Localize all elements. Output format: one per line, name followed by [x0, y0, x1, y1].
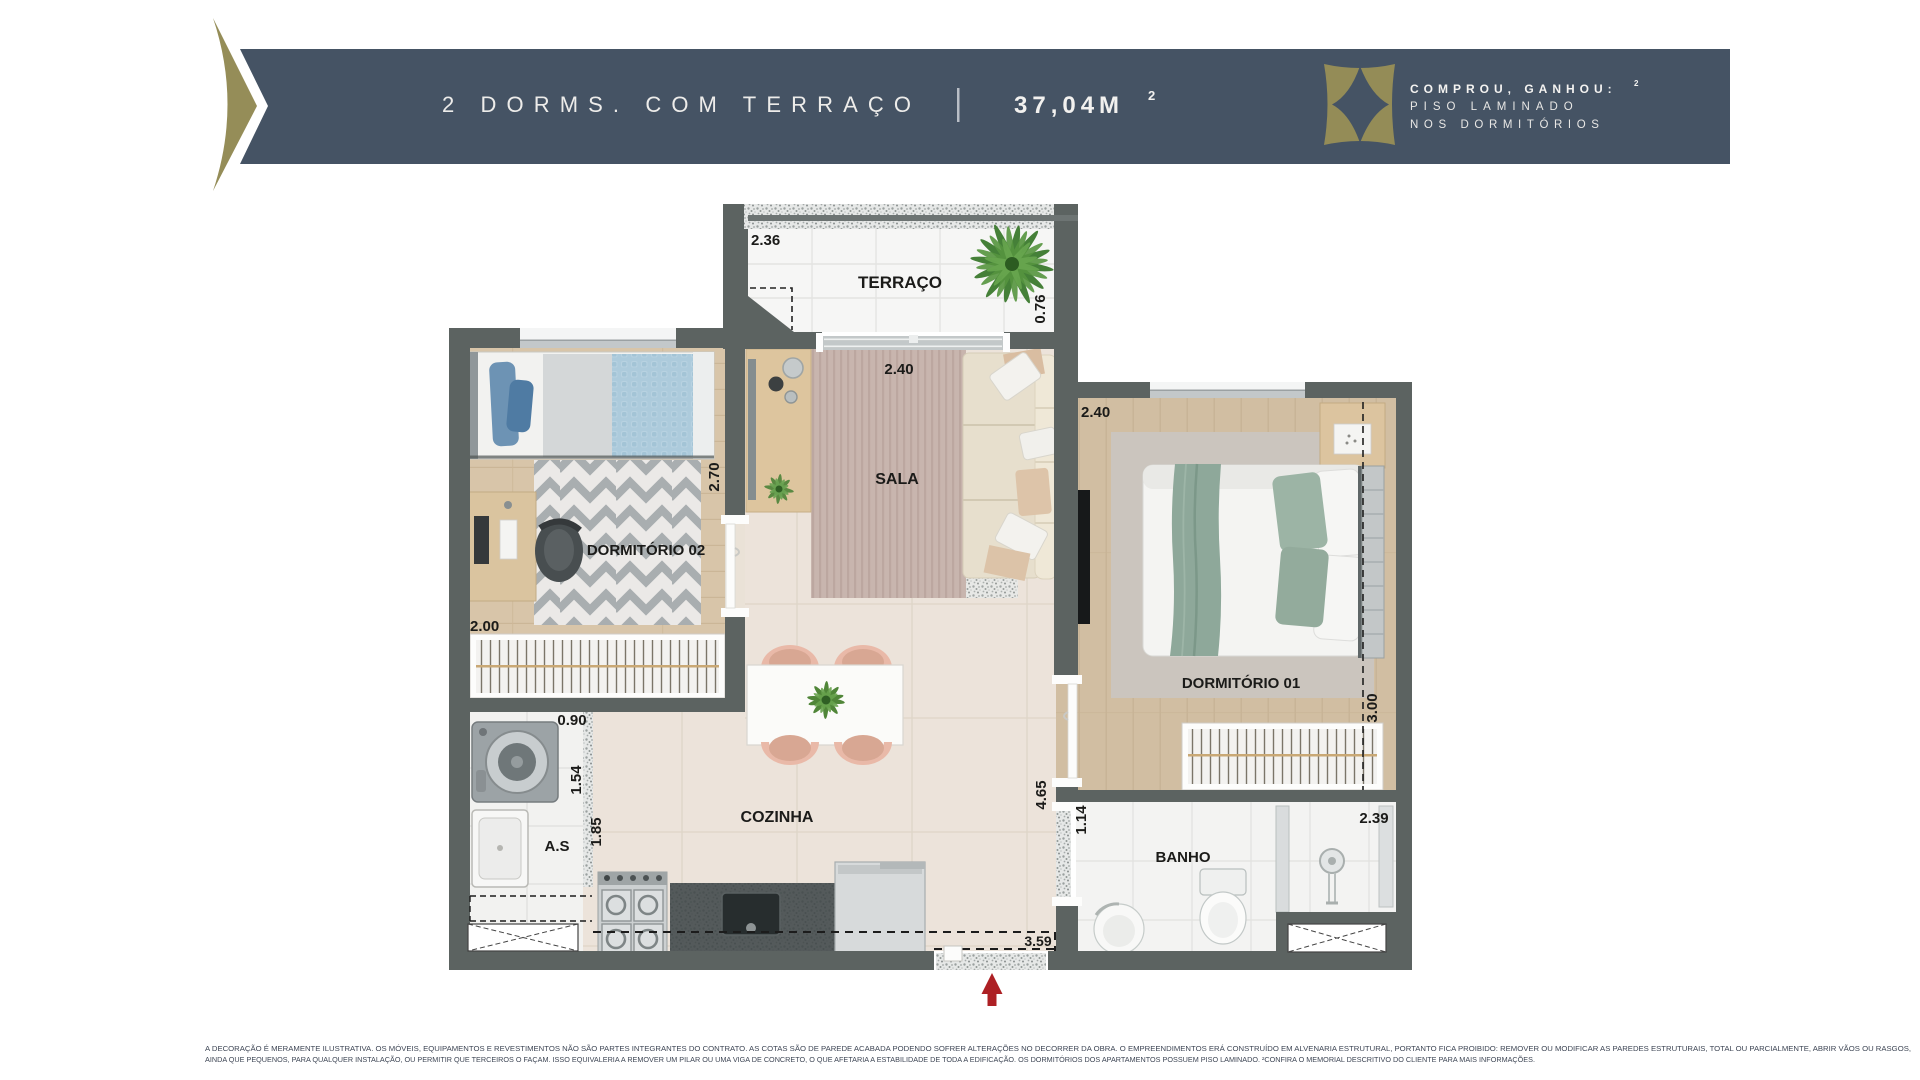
svg-text:SALA: SALA: [875, 471, 919, 488]
svg-text:2.36: 2.36: [751, 232, 780, 249]
svg-text:0.90: 0.90: [557, 712, 586, 729]
svg-text:1.14: 1.14: [1073, 805, 1090, 835]
svg-text:COMPROU, GANHOU:: COMPROU, GANHOU:: [1410, 82, 1617, 96]
svg-text:2.40: 2.40: [1081, 404, 1110, 421]
svg-text:NOS DORMITÓRIOS: NOS DORMITÓRIOS: [1410, 118, 1605, 131]
svg-text:2.39: 2.39: [1359, 810, 1388, 827]
svg-text:COZINHA: COZINHA: [741, 809, 814, 826]
svg-text:1.85: 1.85: [588, 817, 605, 846]
svg-text:2: 2: [1634, 79, 1639, 88]
svg-text:1.54: 1.54: [568, 765, 585, 795]
svg-text:DORMITÓRIO 01: DORMITÓRIO 01: [1182, 674, 1300, 692]
svg-text:TERRAÇO: TERRAÇO: [858, 273, 942, 292]
svg-text:2.70: 2.70: [706, 462, 723, 491]
svg-text:PISO LAMINADO: PISO LAMINADO: [1410, 101, 1579, 113]
svg-text:DORMITÓRIO 02: DORMITÓRIO 02: [587, 541, 705, 559]
svg-text:AINDA QUE PEQUENOS, PARA QUALQ: AINDA QUE PEQUENOS, PARA QUALQUER INSTAL…: [205, 1055, 1535, 1064]
svg-text:2: 2: [1148, 88, 1155, 103]
svg-text:4.65: 4.65: [1033, 780, 1050, 809]
svg-text:2.40: 2.40: [884, 361, 913, 378]
svg-text:37,04M: 37,04M: [1014, 92, 1124, 119]
svg-text:BANHO: BANHO: [1156, 849, 1211, 866]
svg-text:A DECORAÇÃO É MERAMENTE ILUSTR: A DECORAÇÃO É MERAMENTE ILUSTRATIVA. OS …: [205, 1044, 1911, 1053]
svg-text:3.00: 3.00: [1364, 693, 1381, 722]
svg-text:3.59: 3.59: [1024, 933, 1051, 949]
svg-text:A.S: A.S: [544, 838, 569, 855]
svg-text:2 DORMS. COM TERRAÇO: 2 DORMS. COM TERRAÇO: [442, 92, 921, 117]
svg-text:0.76: 0.76: [1032, 294, 1049, 323]
svg-text:2.00: 2.00: [470, 618, 499, 635]
